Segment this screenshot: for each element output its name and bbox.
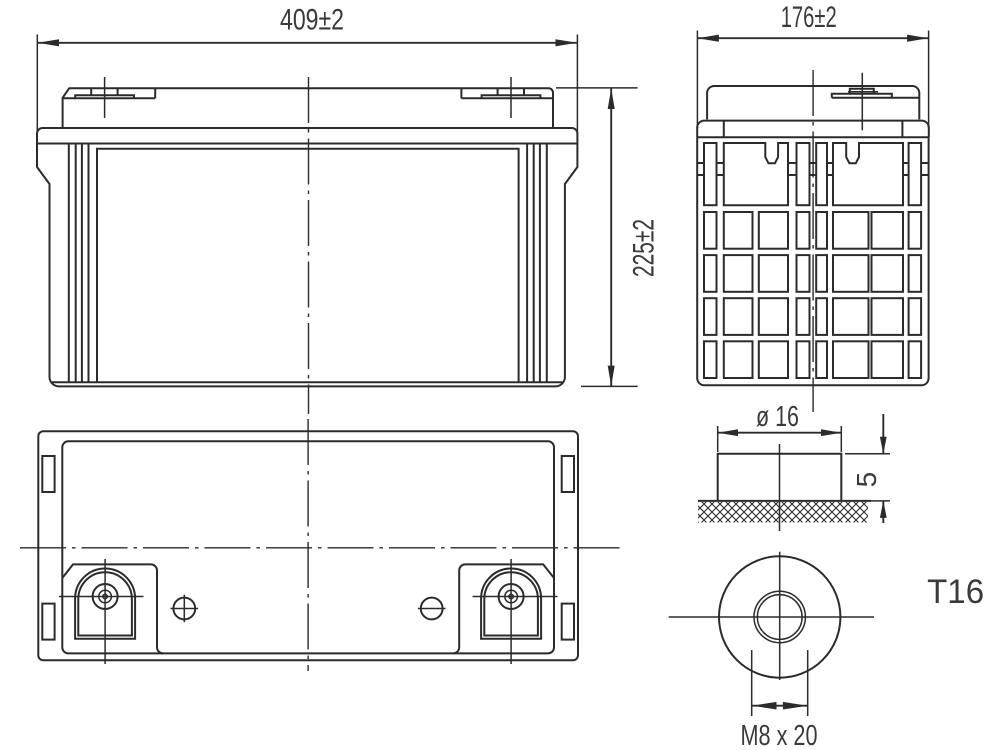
svg-text:ø 16: ø 16 — [756, 401, 799, 433]
svg-text:5: 5 — [851, 472, 882, 488]
svg-text:225±2: 225±2 — [628, 219, 661, 277]
svg-text:176±2: 176±2 — [781, 1, 837, 34]
svg-text:409±2: 409±2 — [280, 4, 344, 37]
svg-text:T16: T16 — [927, 573, 984, 611]
svg-text:M8 x 20: M8 x 20 — [741, 720, 818, 750]
